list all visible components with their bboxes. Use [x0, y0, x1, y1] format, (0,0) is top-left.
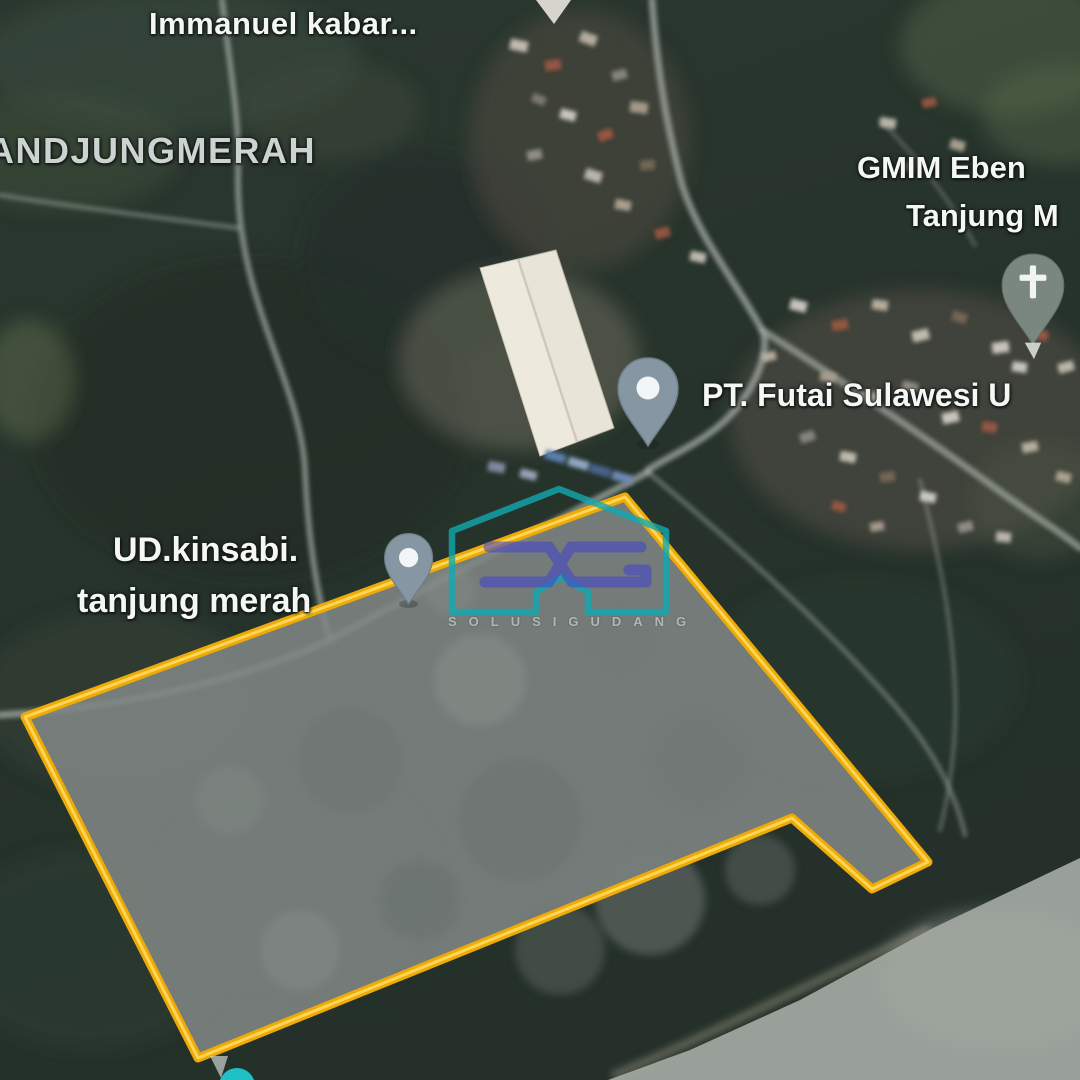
- place-pin-icon-futai[interactable]: [618, 358, 678, 449]
- truck-yard: [487, 449, 633, 484]
- satellite-map[interactable]: Immanuel kabar... ANDJUNGMERAH GMIM Eben…: [0, 0, 1080, 1080]
- watermark-caption: SOLUSIGUDANG: [448, 614, 748, 629]
- poi-label-ud-kinsabi-line2[interactable]: tanjung merah: [77, 582, 311, 621]
- poi-label-pt-futai[interactable]: PT. Futai Sulawesi U: [702, 377, 1011, 414]
- poi-label-immanuel[interactable]: Immanuel kabar...: [149, 6, 418, 42]
- poi-label-ud-kinsabi-line1[interactable]: UD.kinsabi.: [113, 531, 298, 570]
- poi-label-gmim-line1[interactable]: GMIM Eben: [857, 150, 1026, 186]
- locality-label-tandjungmerah[interactable]: ANDJUNGMERAH: [0, 130, 316, 172]
- teal-marker-icon[interactable]: [210, 1056, 255, 1080]
- poi-label-gmim-line2[interactable]: Tanjung M: [906, 198, 1059, 234]
